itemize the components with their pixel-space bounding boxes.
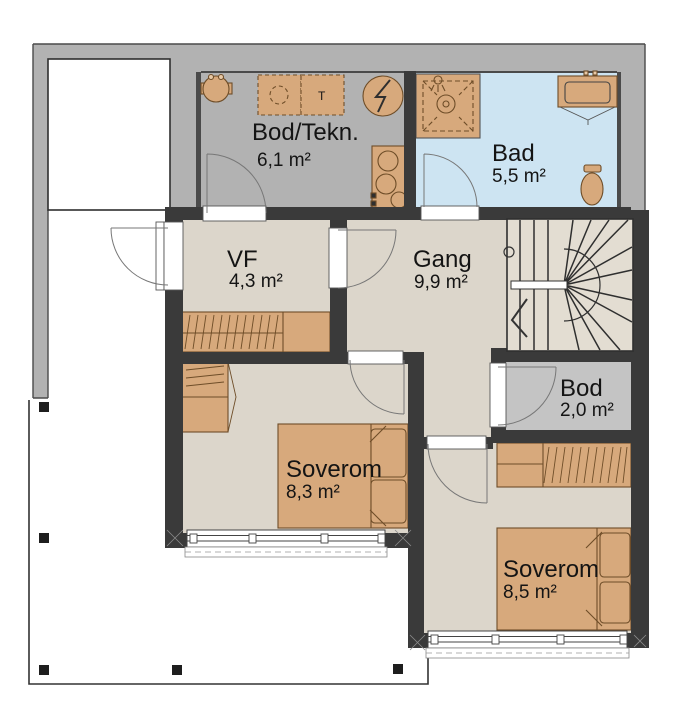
room-area-label: 4,3 m² <box>229 271 283 292</box>
room-name-label: VF <box>227 246 258 273</box>
wardrobe-symbol <box>497 443 631 487</box>
room-area-label: 2,0 m² <box>560 400 614 421</box>
floor-plan: Bod/Tekn. 6,1 m² Bad 5,5 m² VF 4,3 m² Ga… <box>0 0 687 720</box>
room-name-label: Bod <box>560 375 603 402</box>
gang-floor-south <box>420 352 493 449</box>
terrace-post <box>172 665 182 675</box>
bad-door-opening <box>421 206 479 220</box>
terrace-post <box>39 402 49 412</box>
terrace-post <box>39 665 49 675</box>
terrace-post <box>393 664 403 674</box>
wardrobe-symbol <box>182 362 236 432</box>
room-area-label: 9,9 m² <box>414 272 468 293</box>
soverom2-door-opening <box>427 436 486 449</box>
window-symbol <box>426 631 629 658</box>
entry-door-sill <box>156 222 164 290</box>
thin-wall-bodtekn <box>196 72 201 207</box>
terrace-post <box>39 533 49 543</box>
thin-wall-bad <box>617 72 621 210</box>
entry-door-opening <box>164 222 183 290</box>
room-area-label: 5,5 m² <box>492 166 546 187</box>
room-name-label: Soverom <box>286 456 382 483</box>
toilet-symbol <box>581 165 603 205</box>
electrical-panel-symbol <box>363 76 403 116</box>
vf-gang-door-opening <box>329 228 347 288</box>
room-area-label: 8,5 m² <box>503 582 557 603</box>
room-area-label: 8,3 m² <box>286 482 340 503</box>
floor-plan-svg: Bod/Tekn. 6,1 m² Bad 5,5 m² VF 4,3 m² Ga… <box>0 0 687 720</box>
bod-door-opening <box>490 363 506 427</box>
stairs-symbol <box>504 219 633 351</box>
washing-machine-symbol <box>258 75 301 115</box>
ventilation-unit-symbol <box>371 146 408 208</box>
shower-symbol <box>416 74 480 138</box>
room-name-label: Soverom <box>503 556 599 583</box>
room-area-label: 6,1 m² <box>257 150 311 171</box>
bodtekn-door-opening <box>203 206 266 221</box>
room-name-label: Bad <box>492 140 535 167</box>
soverom1-door-opening <box>348 351 403 364</box>
dryer-label: T <box>318 89 326 103</box>
room-name-label: Bod/Tekn. <box>252 119 359 146</box>
room-name-label: Gang <box>413 246 472 273</box>
entry-porch <box>48 59 170 210</box>
wardrobe-symbol <box>182 312 330 352</box>
window-symbol <box>185 530 387 557</box>
